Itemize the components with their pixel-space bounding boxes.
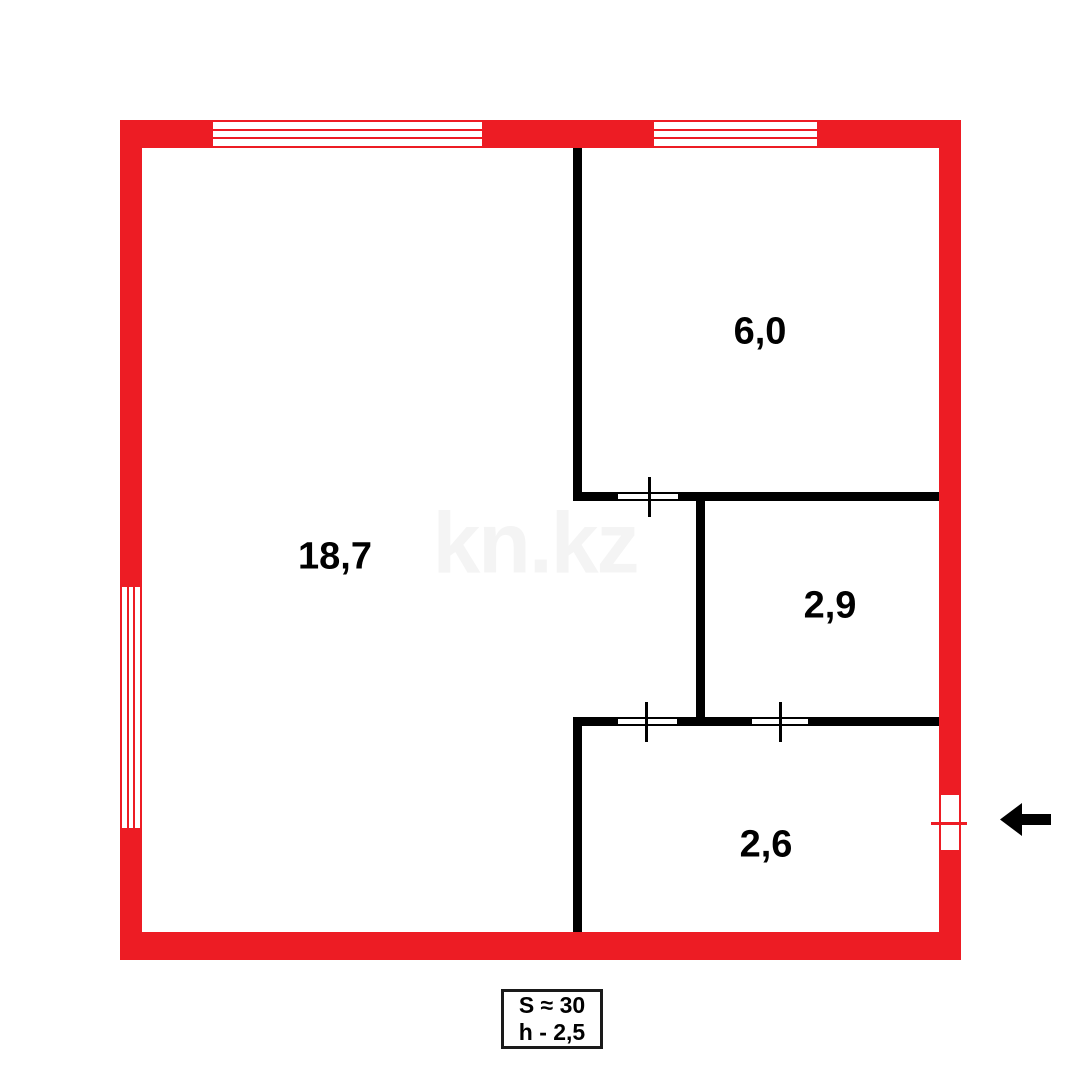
floor-plan: kn.kz <box>0 0 1080 1080</box>
door-tick <box>779 702 782 742</box>
window-top-left <box>211 120 484 148</box>
window-pane <box>213 139 482 146</box>
window-pane <box>213 131 482 138</box>
interior-wall-vertical-lower <box>573 726 582 932</box>
info-box: S ≈ 30 h - 2,5 <box>501 989 603 1049</box>
door-tick <box>648 477 651 517</box>
window-pane <box>654 131 817 138</box>
room-area-label-6: 6,0 <box>734 311 787 354</box>
window-pane <box>654 122 817 129</box>
entrance-arrow-icon <box>1000 801 1051 838</box>
total-area-label: S ≈ 30 <box>519 992 585 1019</box>
outer-wall-left <box>120 120 142 960</box>
interior-wall-vertical-middle <box>696 492 705 726</box>
interior-wall-vertical-upper <box>573 148 582 501</box>
room-area-label-29: 2,9 <box>804 585 857 628</box>
window-pane <box>213 122 482 129</box>
room-area-label-26: 2,6 <box>740 824 793 867</box>
ceiling-height-label: h - 2,5 <box>519 1019 585 1046</box>
window-pane <box>654 139 817 146</box>
room-area-label-living: 18,7 <box>298 536 372 579</box>
outer-wall-bottom <box>120 932 961 960</box>
entrance-door-tick <box>931 822 967 825</box>
window-top-right <box>652 120 819 148</box>
watermark-logo: kn.kz <box>432 495 637 594</box>
door-tick <box>645 702 648 742</box>
window-pane <box>135 587 140 828</box>
window-left <box>120 585 142 830</box>
